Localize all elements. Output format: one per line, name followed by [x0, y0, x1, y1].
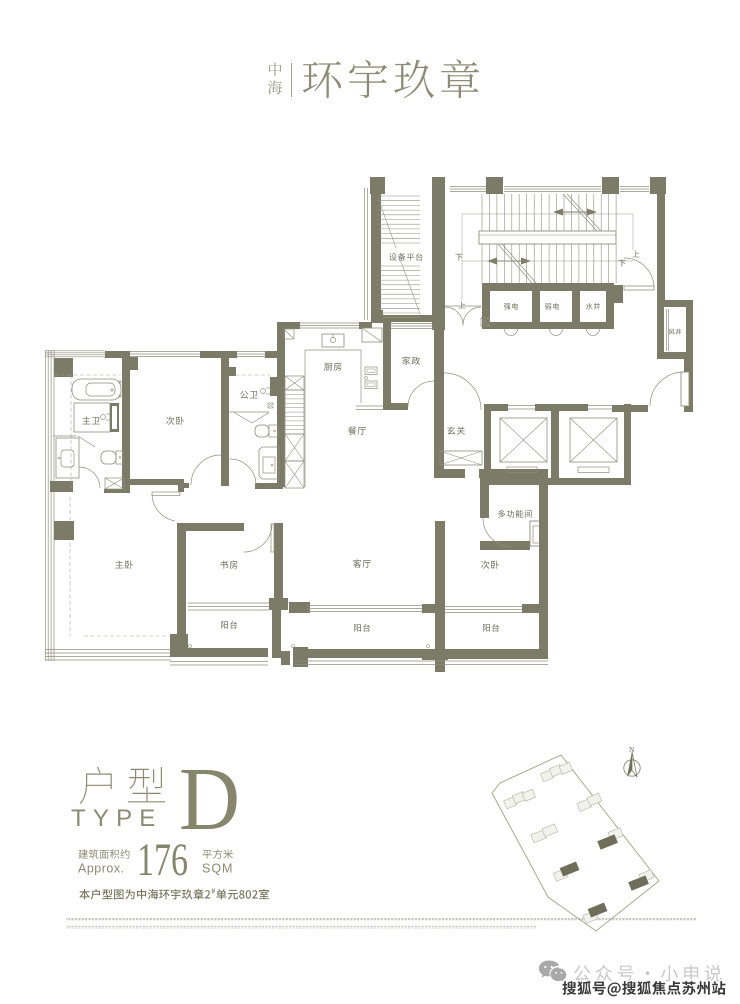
- svg-text:176: 176: [137, 834, 188, 886]
- svg-text:TYPE: TYPE: [71, 805, 162, 832]
- svg-text:SQM: SQM: [202, 862, 233, 876]
- svg-text:N: N: [629, 745, 635, 754]
- svg-text:D: D: [179, 750, 240, 849]
- svg-text:Approx.: Approx.: [78, 862, 125, 876]
